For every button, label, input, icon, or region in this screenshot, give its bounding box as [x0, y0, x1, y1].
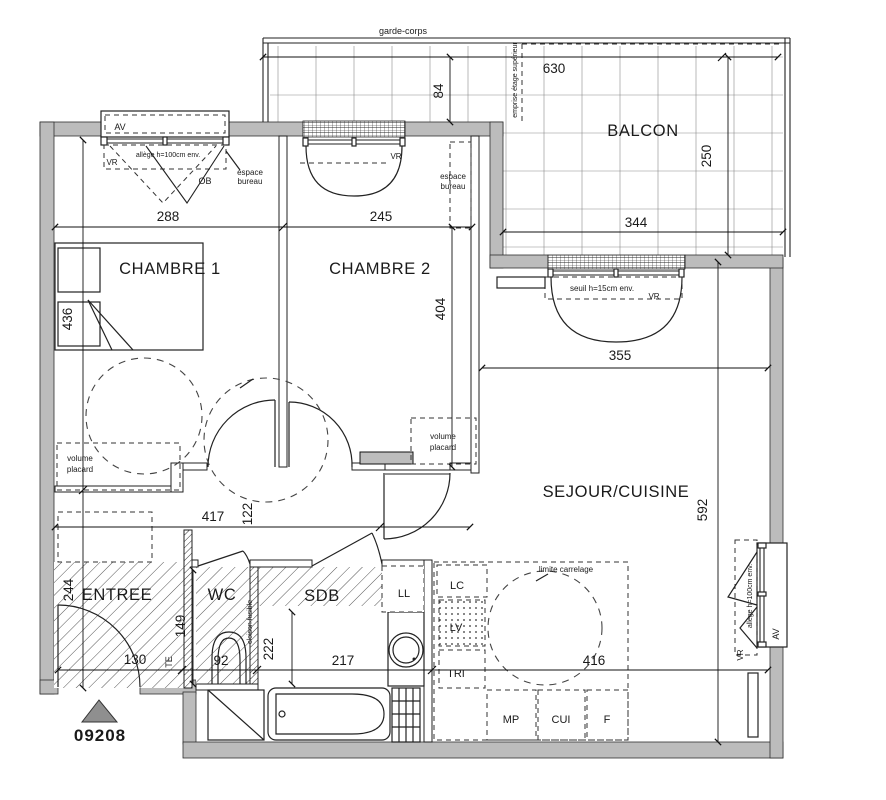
dim-404: 404	[433, 297, 448, 320]
sdb-door-swing	[372, 533, 382, 564]
dim-92: 92	[213, 653, 228, 668]
room-label-entree: ENTREE	[82, 586, 153, 604]
annotation-seuil: seuil h=15cm env.	[570, 284, 634, 293]
casement-swing-left	[306, 146, 354, 196]
appliance-label-tri: TRI	[447, 668, 465, 680]
turning-circle-hall	[204, 378, 328, 502]
room-label-chambre2: CHAMBRE 2	[329, 260, 431, 278]
svg-text:placard: placard	[67, 465, 93, 474]
entry-marker-triangle	[82, 700, 117, 722]
annotation-vr-balcon: VR	[648, 292, 659, 301]
dim-244: 244	[61, 578, 76, 601]
dim-84: 84	[431, 83, 446, 99]
annotation-emprise: emprise étage supérieur	[512, 42, 519, 118]
annotation-cloison-fusible: cloison fusible	[247, 600, 254, 644]
room-label-sejour-cuisine: SEJOUR/CUISINE	[543, 483, 690, 501]
appliance-label-ll: LL	[398, 588, 410, 600]
appliance-label-cui: CUI	[552, 714, 571, 726]
annotation-allege-chambre1: allège h=100cm env.	[136, 152, 200, 159]
dim-436: 436	[60, 308, 75, 331]
annotation-ob: OB	[198, 176, 211, 186]
annotation-volume-placard-1: volume	[67, 454, 93, 463]
annotation-espace-bureau-1: espace	[237, 168, 263, 177]
dim-250: 250	[699, 145, 714, 168]
room-label-balcon: BALCON	[607, 122, 678, 140]
dim-417: 417	[202, 509, 225, 524]
washbasin	[389, 633, 423, 667]
sdb-door-leaf	[312, 533, 372, 566]
annotation-volume-placard-2: volume	[430, 432, 456, 441]
annotation-allege-right: allège h=100cm env.	[747, 564, 754, 628]
appliance-label-lv: LV	[450, 622, 463, 634]
sliding-door-panel	[360, 452, 413, 464]
dim-416: 416	[583, 653, 606, 668]
wc-door-swing	[243, 551, 250, 564]
appliance-label-mp: MP	[503, 714, 520, 726]
annotation-te: TE	[164, 656, 174, 668]
appliance-label-f: F	[604, 714, 611, 726]
floor-plan-page: CHAMBRE 1 CHAMBRE 2 BALCON SEJOUR/CUISIN…	[0, 0, 886, 800]
placard-chambre2	[411, 418, 476, 464]
leader-line	[226, 151, 240, 170]
annotation-vr-right: VR	[736, 649, 745, 660]
dim-288: 288	[157, 209, 180, 224]
annotation-espace-bureau-2: espace	[440, 172, 466, 181]
sejour-door-swing	[384, 473, 450, 539]
annotation-av-right: AV	[771, 628, 781, 639]
svg-text:bureau: bureau	[238, 177, 263, 186]
floor-plan-drawing: CHAMBRE 1 CHAMBRE 2 BALCON SEJOUR/CUISIN…	[0, 0, 886, 800]
dim-149: 149	[173, 615, 188, 638]
radiator	[497, 277, 545, 288]
bathtub	[268, 688, 390, 740]
annotation-limite-carrelage: limite carrelage	[539, 565, 594, 574]
entree-closet	[58, 512, 152, 562]
pillow	[58, 248, 100, 292]
room-label-sdb: SDB	[304, 587, 340, 605]
dim-344: 344	[625, 215, 648, 230]
dim-222: 222	[261, 638, 276, 661]
radiator	[748, 673, 758, 737]
plan-number: 09208	[74, 726, 126, 745]
appliance-label-lc: LC	[450, 580, 464, 592]
dim-355: 355	[609, 348, 632, 363]
wc-door-leaf	[198, 551, 243, 566]
chambre1-door-swing	[208, 400, 275, 467]
dim-217: 217	[332, 653, 355, 668]
annotation-av-chambre1: AV	[114, 122, 125, 132]
dim-245: 245	[370, 209, 393, 224]
dim-630: 630	[543, 61, 566, 76]
svg-text:bureau: bureau	[441, 182, 466, 191]
window-chambre2	[300, 121, 405, 196]
dim-130: 130	[124, 652, 147, 667]
svg-text:placard: placard	[430, 443, 456, 452]
hatched-floors	[54, 562, 424, 688]
dim-122: 122	[240, 503, 255, 526]
entree-wc-partition	[184, 530, 192, 688]
room-label-chambre1: CHAMBRE 1	[119, 260, 221, 278]
dim-592: 592	[695, 499, 710, 522]
annotation-vr-chambre1: VR	[106, 158, 117, 167]
turning-circle-chambre1	[86, 358, 202, 474]
annotation-garde-corps: garde-corps	[379, 26, 428, 36]
chambre2-door-swing	[289, 402, 352, 467]
room-label-wc: WC	[208, 586, 237, 604]
annotation-vr-chambre2: VR	[390, 152, 401, 161]
